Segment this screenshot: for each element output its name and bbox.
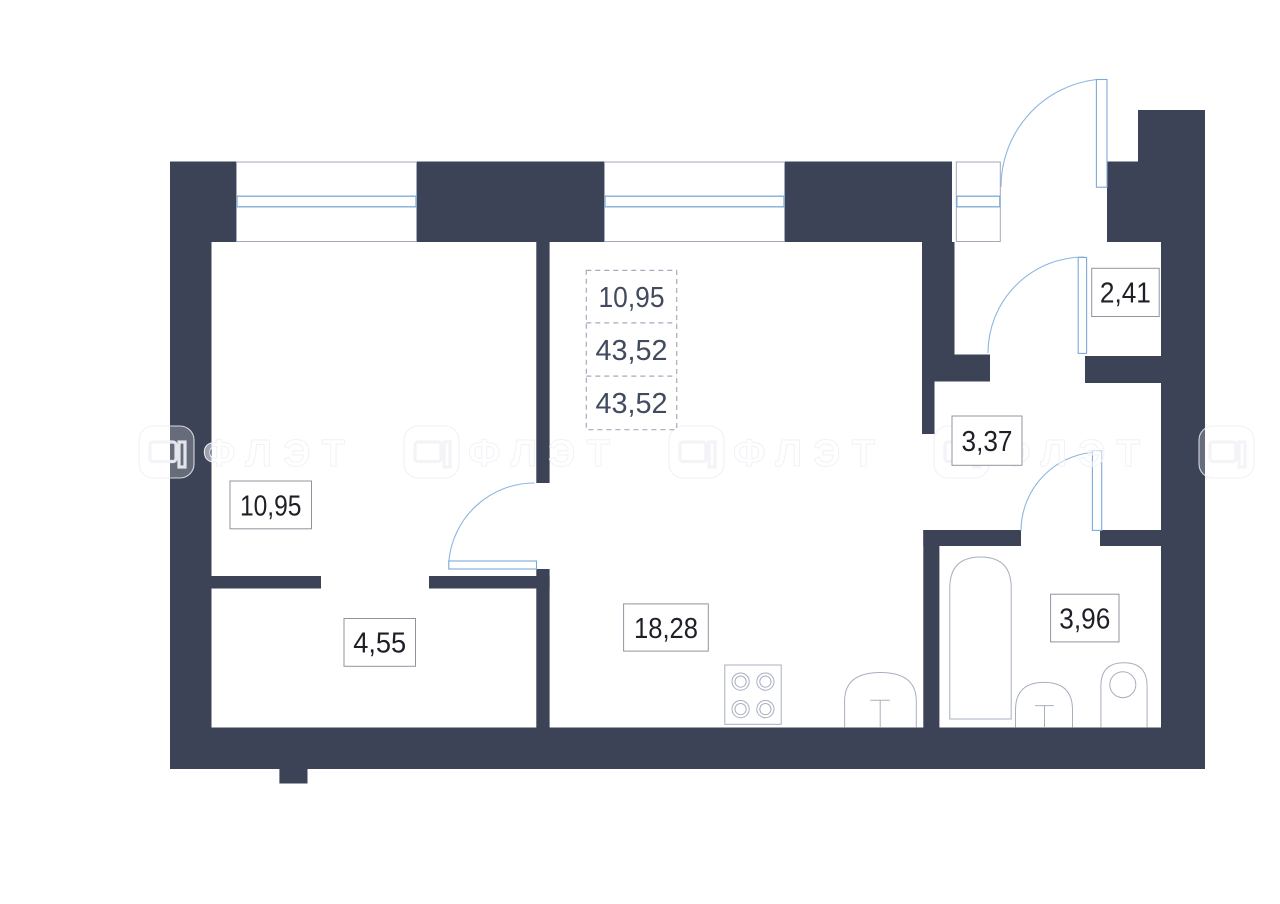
svg-text:4,55: 4,55 (353, 628, 406, 660)
svg-text:2,41: 2,41 (1100, 278, 1151, 310)
svg-text:ФЛЭТ: ФЛЭТ (203, 433, 351, 475)
svg-text:3,96: 3,96 (1059, 603, 1110, 635)
svg-text:3,37: 3,37 (962, 426, 1013, 458)
svg-text:18,28: 18,28 (634, 613, 698, 645)
svg-text:10,95: 10,95 (240, 490, 302, 522)
svg-text:ФЛЭТ: ФЛЭТ (468, 433, 616, 475)
svg-text:43,52: 43,52 (596, 388, 668, 420)
svg-text:43,52: 43,52 (596, 335, 668, 367)
svg-text:ФЛЭТ: ФЛЭТ (733, 433, 881, 475)
svg-text:10,95: 10,95 (599, 282, 665, 314)
